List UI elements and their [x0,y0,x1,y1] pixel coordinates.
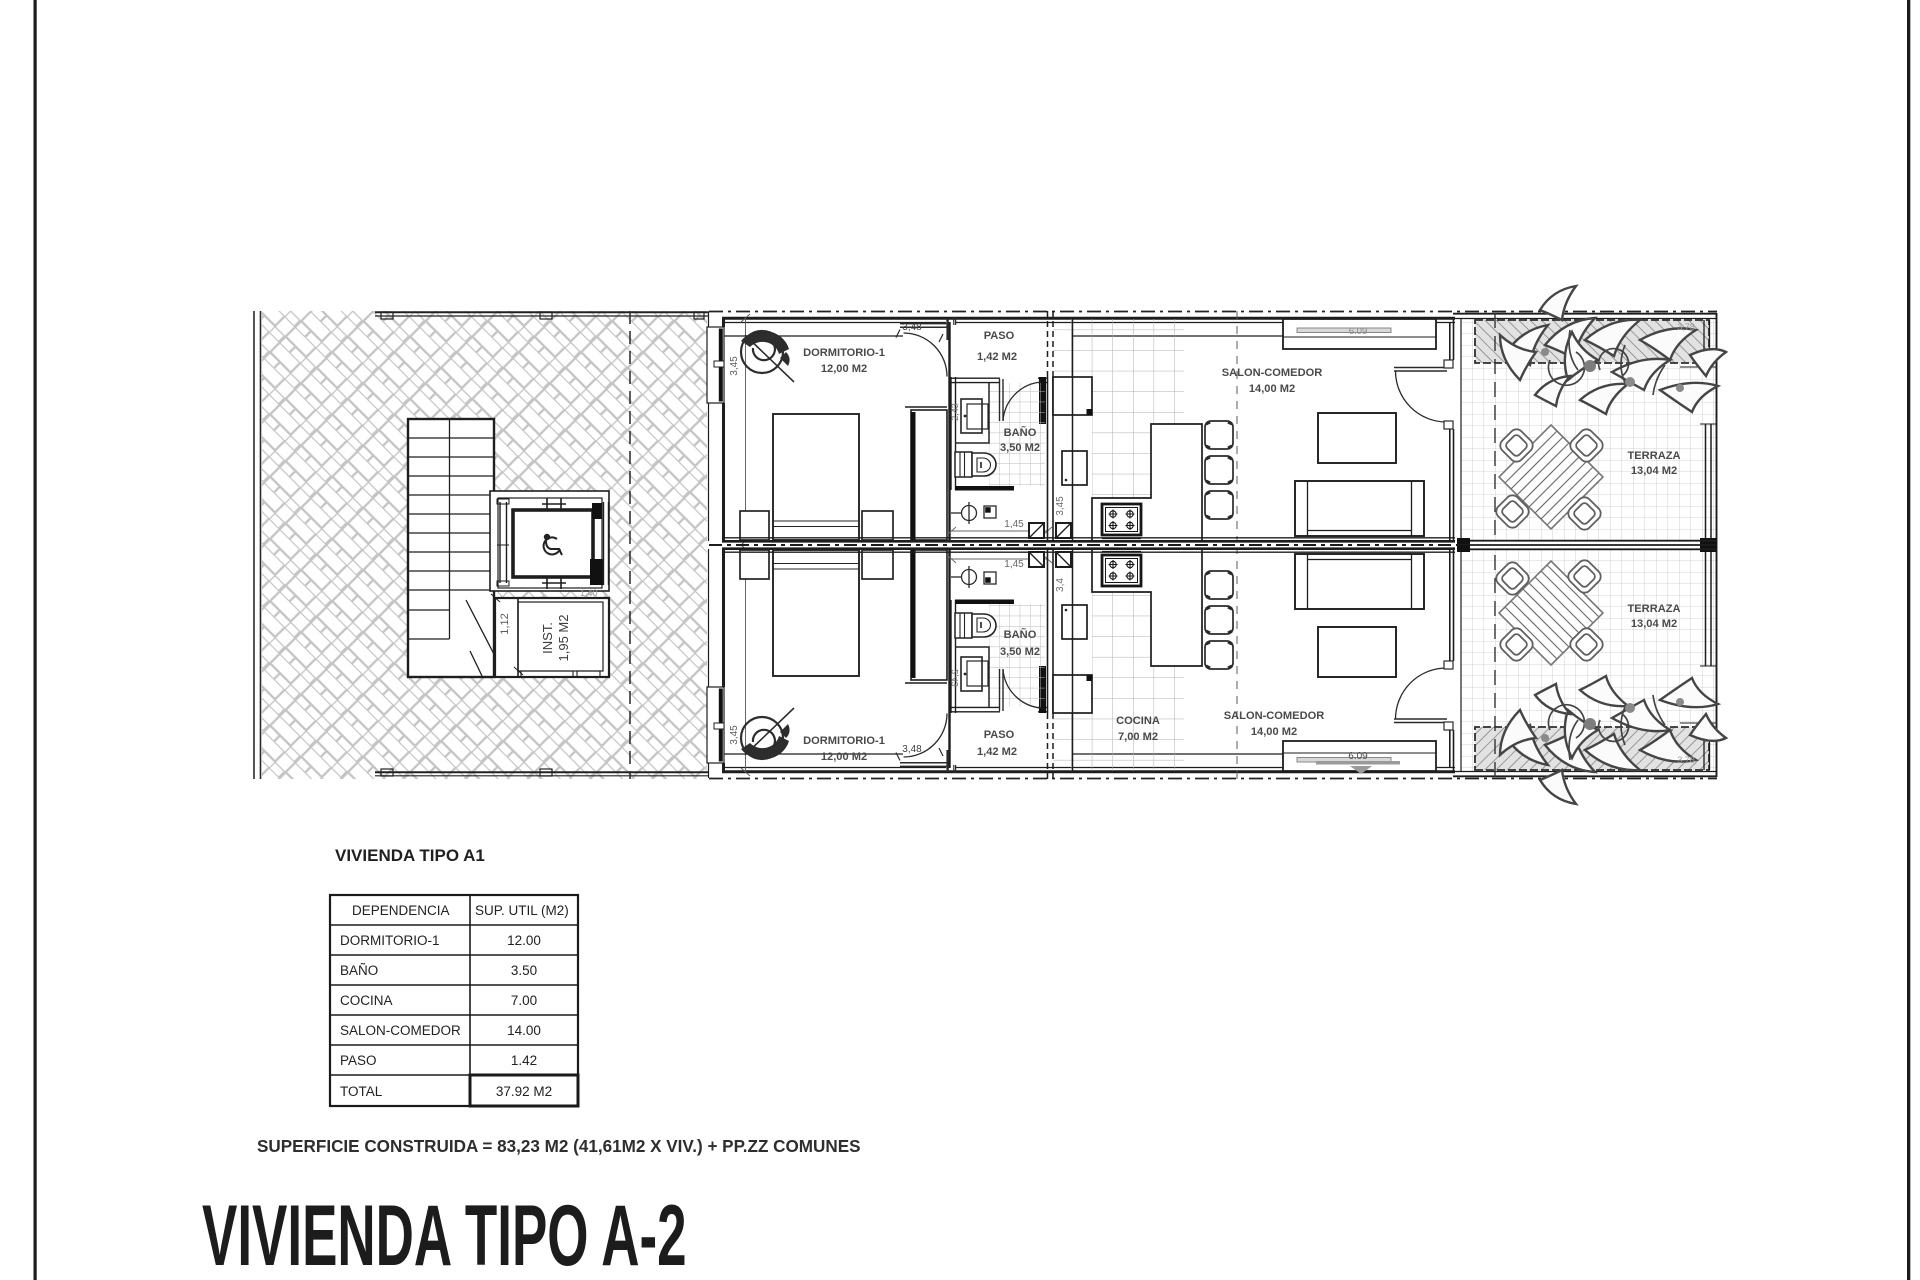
svg-text:DORMITORIO-1: DORMITORIO-1 [803,735,885,747]
svg-text:PASO: PASO [340,1053,377,1068]
svg-text:COCINA: COCINA [1116,715,1160,727]
svg-text:SUP. UTIL (M2): SUP. UTIL (M2) [475,903,569,918]
svg-text:14.00: 14.00 [507,1023,541,1038]
svg-text:BAÑO: BAÑO [1004,628,1037,641]
svg-text:VIVIENDA TIPO A1: VIVIENDA TIPO A1 [335,846,485,865]
svg-text:VIVIENDA TIPO A-2: VIVIENDA TIPO A-2 [202,1188,687,1280]
svg-text:2,43: 2,43 [950,403,960,421]
svg-text:1.42: 1.42 [511,1053,537,1068]
svg-text:3.50: 3.50 [511,963,537,978]
svg-text:1,42 M2: 1,42 M2 [977,351,1017,363]
svg-text:3,78: 3,78 [1677,322,1695,332]
svg-text:TERRAZA: TERRAZA [1628,603,1681,615]
svg-text:3,78: 3,78 [1677,755,1695,765]
svg-text:SALON-COMEDOR: SALON-COMEDOR [340,1023,461,1038]
svg-text:1,42 M2: 1,42 M2 [977,746,1017,758]
svg-text:TOTAL: TOTAL [340,1084,383,1099]
svg-text:7.00: 7.00 [511,993,537,1008]
svg-text:SUPERFICIE CONSTRUIDA = 83,23: SUPERFICIE CONSTRUIDA = 83,23 M2 (41,61M… [257,1137,861,1156]
svg-text:12.00: 12.00 [507,933,541,948]
svg-text:SALON-COMEDOR: SALON-COMEDOR [1224,710,1324,722]
svg-text:3,50 M2: 3,50 M2 [1000,646,1040,658]
svg-text:3,45: 3,45 [1055,496,1066,516]
svg-text:DORMITORIO-1: DORMITORIO-1 [340,933,440,948]
svg-text:13,04 M2: 13,04 M2 [1631,618,1677,630]
svg-text:DEPENDENCIA: DEPENDENCIA [352,903,450,918]
svg-text:3,48: 3,48 [902,322,922,333]
svg-text:1,45: 1,45 [1004,519,1024,530]
svg-text:37.92 M2: 37.92 M2 [496,1084,552,1099]
svg-text:COCINA: COCINA [340,993,393,1008]
svg-text:BAÑO: BAÑO [340,963,378,978]
svg-text:7,00 M2: 7,00 M2 [1118,731,1158,743]
svg-text:PASO: PASO [984,330,1015,342]
svg-text:3,45: 3,45 [729,725,740,745]
svg-text:13,04 M2: 13,04 M2 [1631,465,1677,477]
svg-text:1,40: 1,40 [580,588,598,598]
svg-text:SALON-COMEDOR: SALON-COMEDOR [1222,367,1322,379]
svg-text:1,45: 1,45 [1004,559,1024,570]
svg-text:1,95 M2: 1,95 M2 [556,615,571,662]
svg-text:6.09: 6.09 [1348,751,1368,762]
svg-text:DORMITORIO-1: DORMITORIO-1 [803,347,885,359]
svg-text:6.09: 6.09 [1349,326,1368,337]
svg-text:TERRAZA: TERRAZA [1628,450,1681,462]
svg-text:1,12: 1,12 [499,613,511,634]
svg-text:3,50 M2: 3,50 M2 [1000,442,1040,454]
svg-text:12,00 M2: 12,00 M2 [821,363,867,375]
svg-text:3,4: 3,4 [1055,578,1066,592]
svg-text:14,00 M2: 14,00 M2 [1249,383,1295,395]
svg-text:12,00 M2: 12,00 M2 [821,751,867,763]
svg-text:PASO: PASO [984,729,1015,741]
svg-text:BAÑO: BAÑO [1004,426,1037,439]
svg-text:3,48: 3,48 [902,744,922,755]
svg-text:INST.: INST. [540,622,555,654]
svg-text:3,45: 3,45 [729,356,740,376]
svg-text:14,00 M2: 14,00 M2 [1251,726,1297,738]
